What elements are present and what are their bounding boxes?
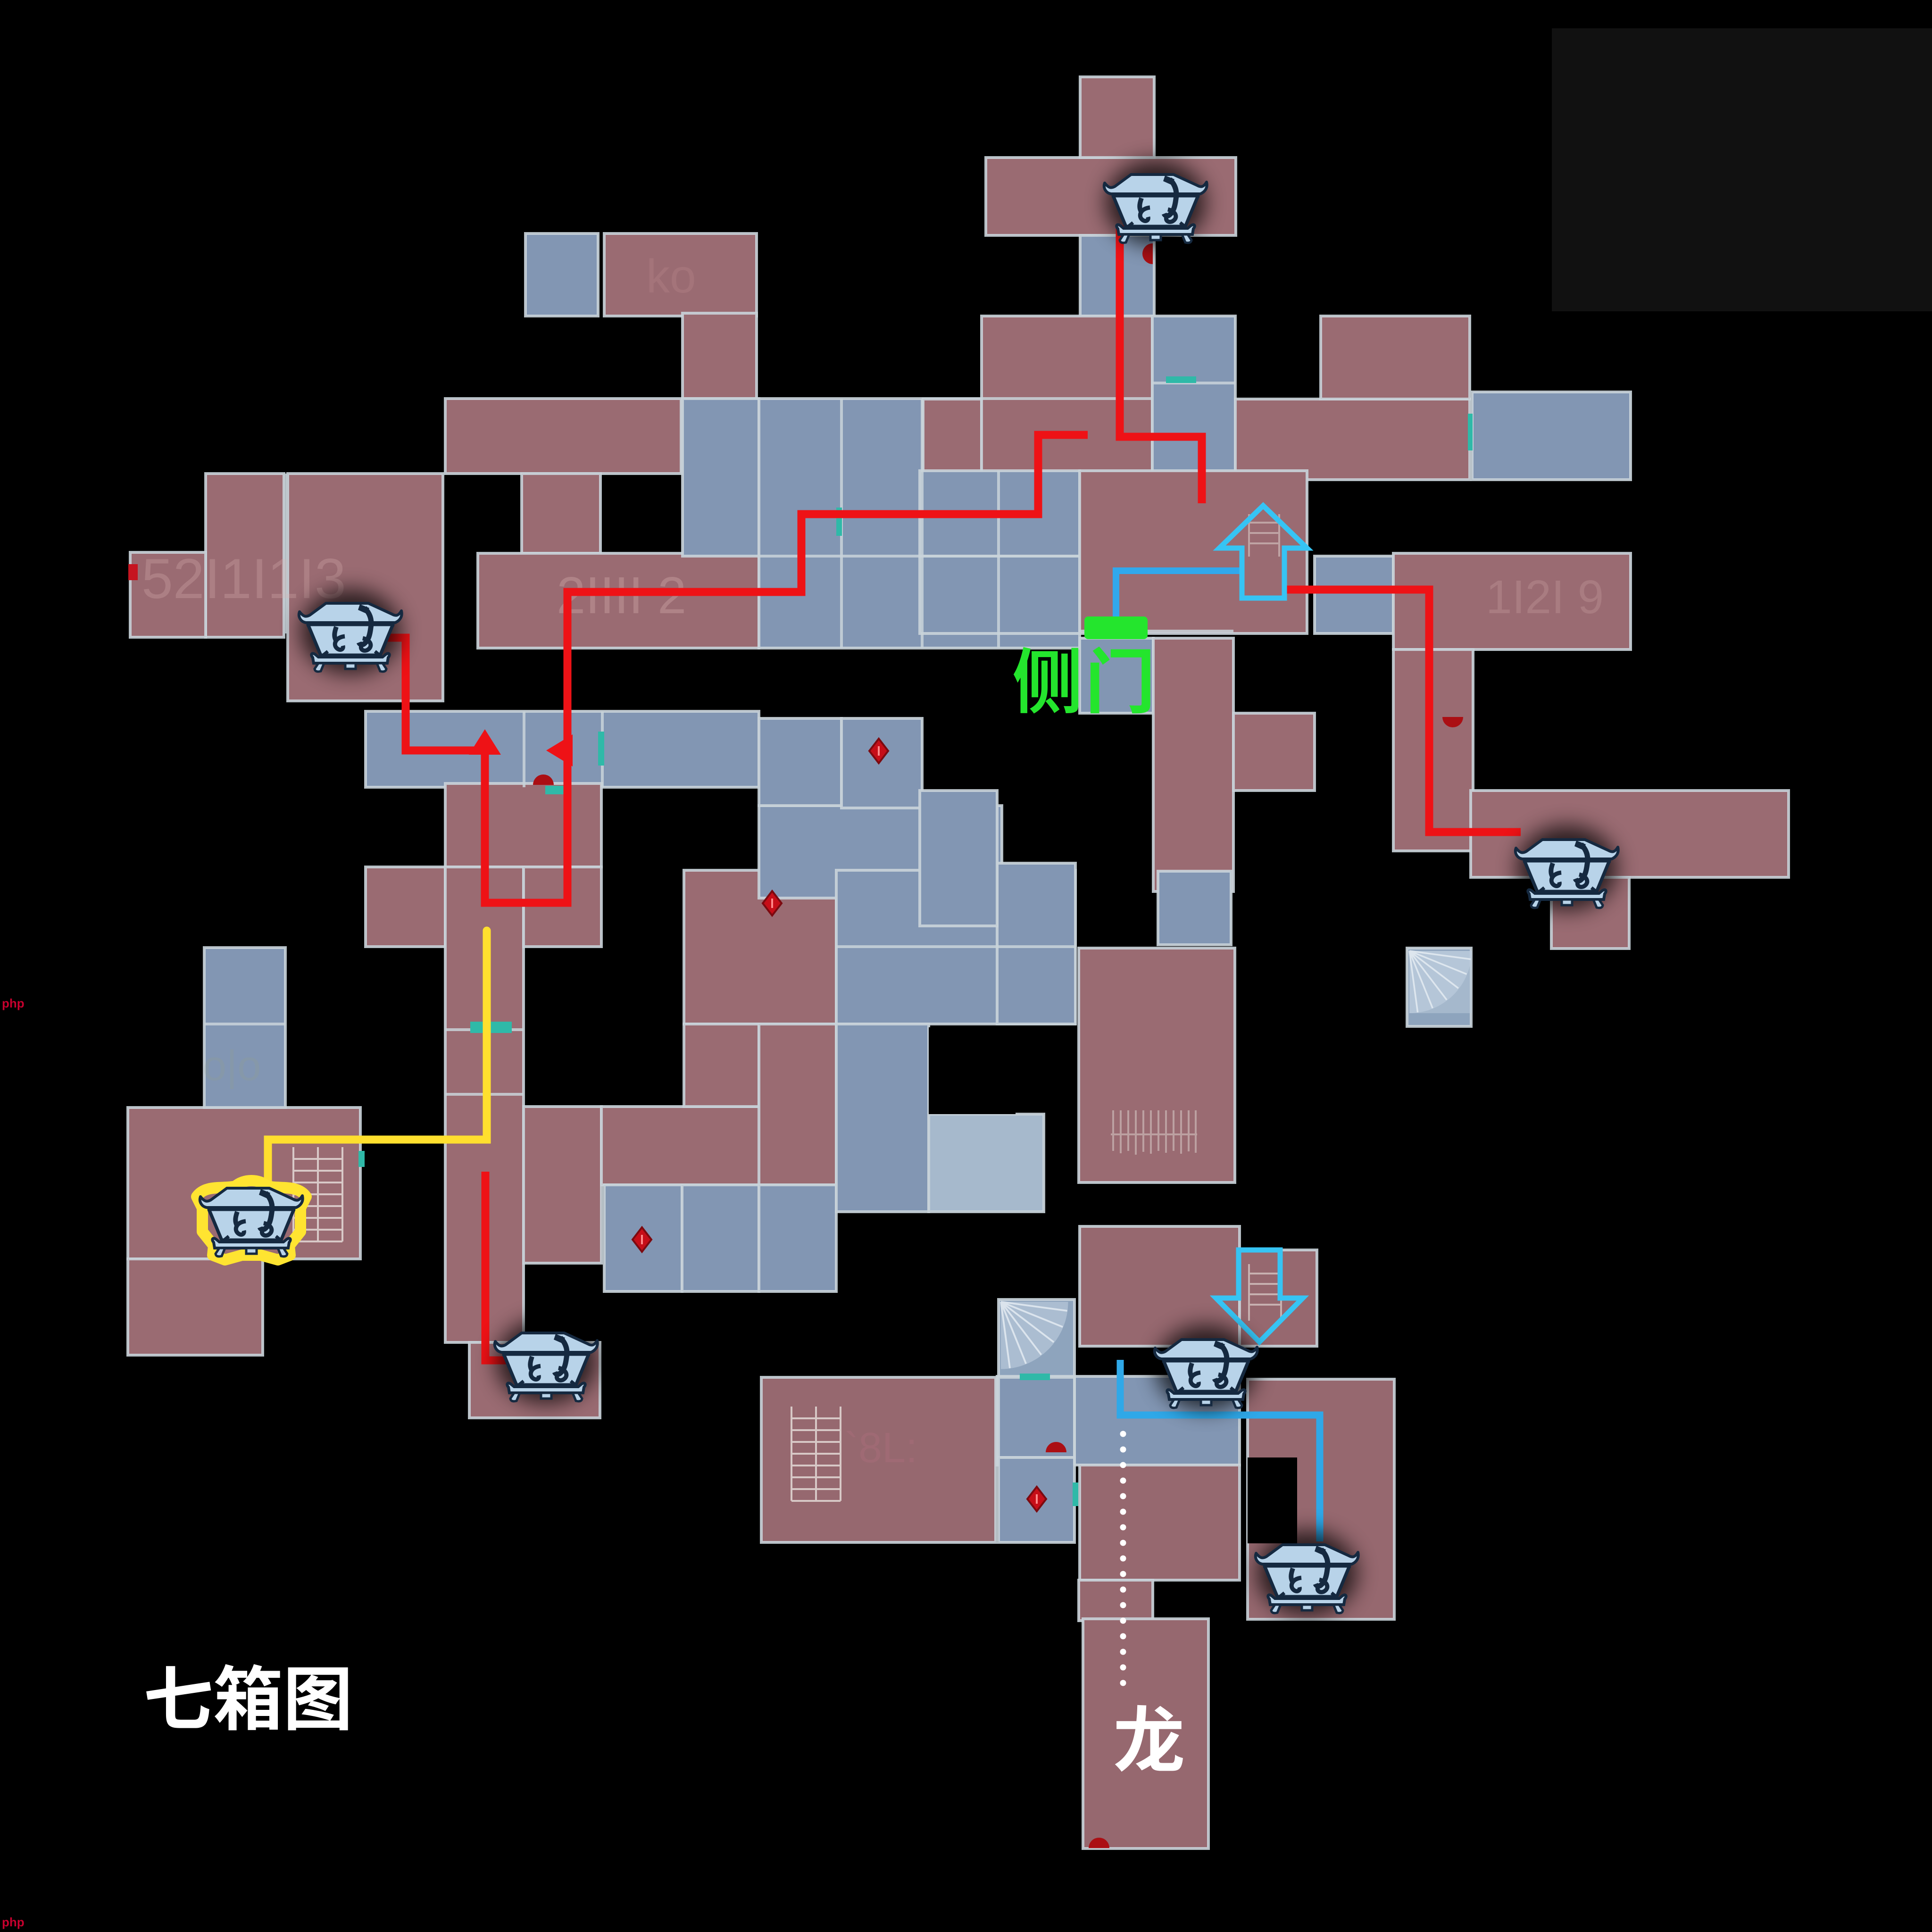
svg-text:`8L:: `8L:	[844, 1424, 917, 1472]
svg-text:1I2I 9: 1I2I 9	[1486, 571, 1604, 624]
svg-text:o|o: o|o	[203, 1042, 261, 1090]
svg-text:52I1I1I3: 52I1I1I3	[142, 547, 346, 610]
svg-text:php: php	[2, 1915, 25, 1929]
svg-text:php: php	[2, 996, 25, 1010]
svg-text:ko: ko	[646, 250, 696, 303]
